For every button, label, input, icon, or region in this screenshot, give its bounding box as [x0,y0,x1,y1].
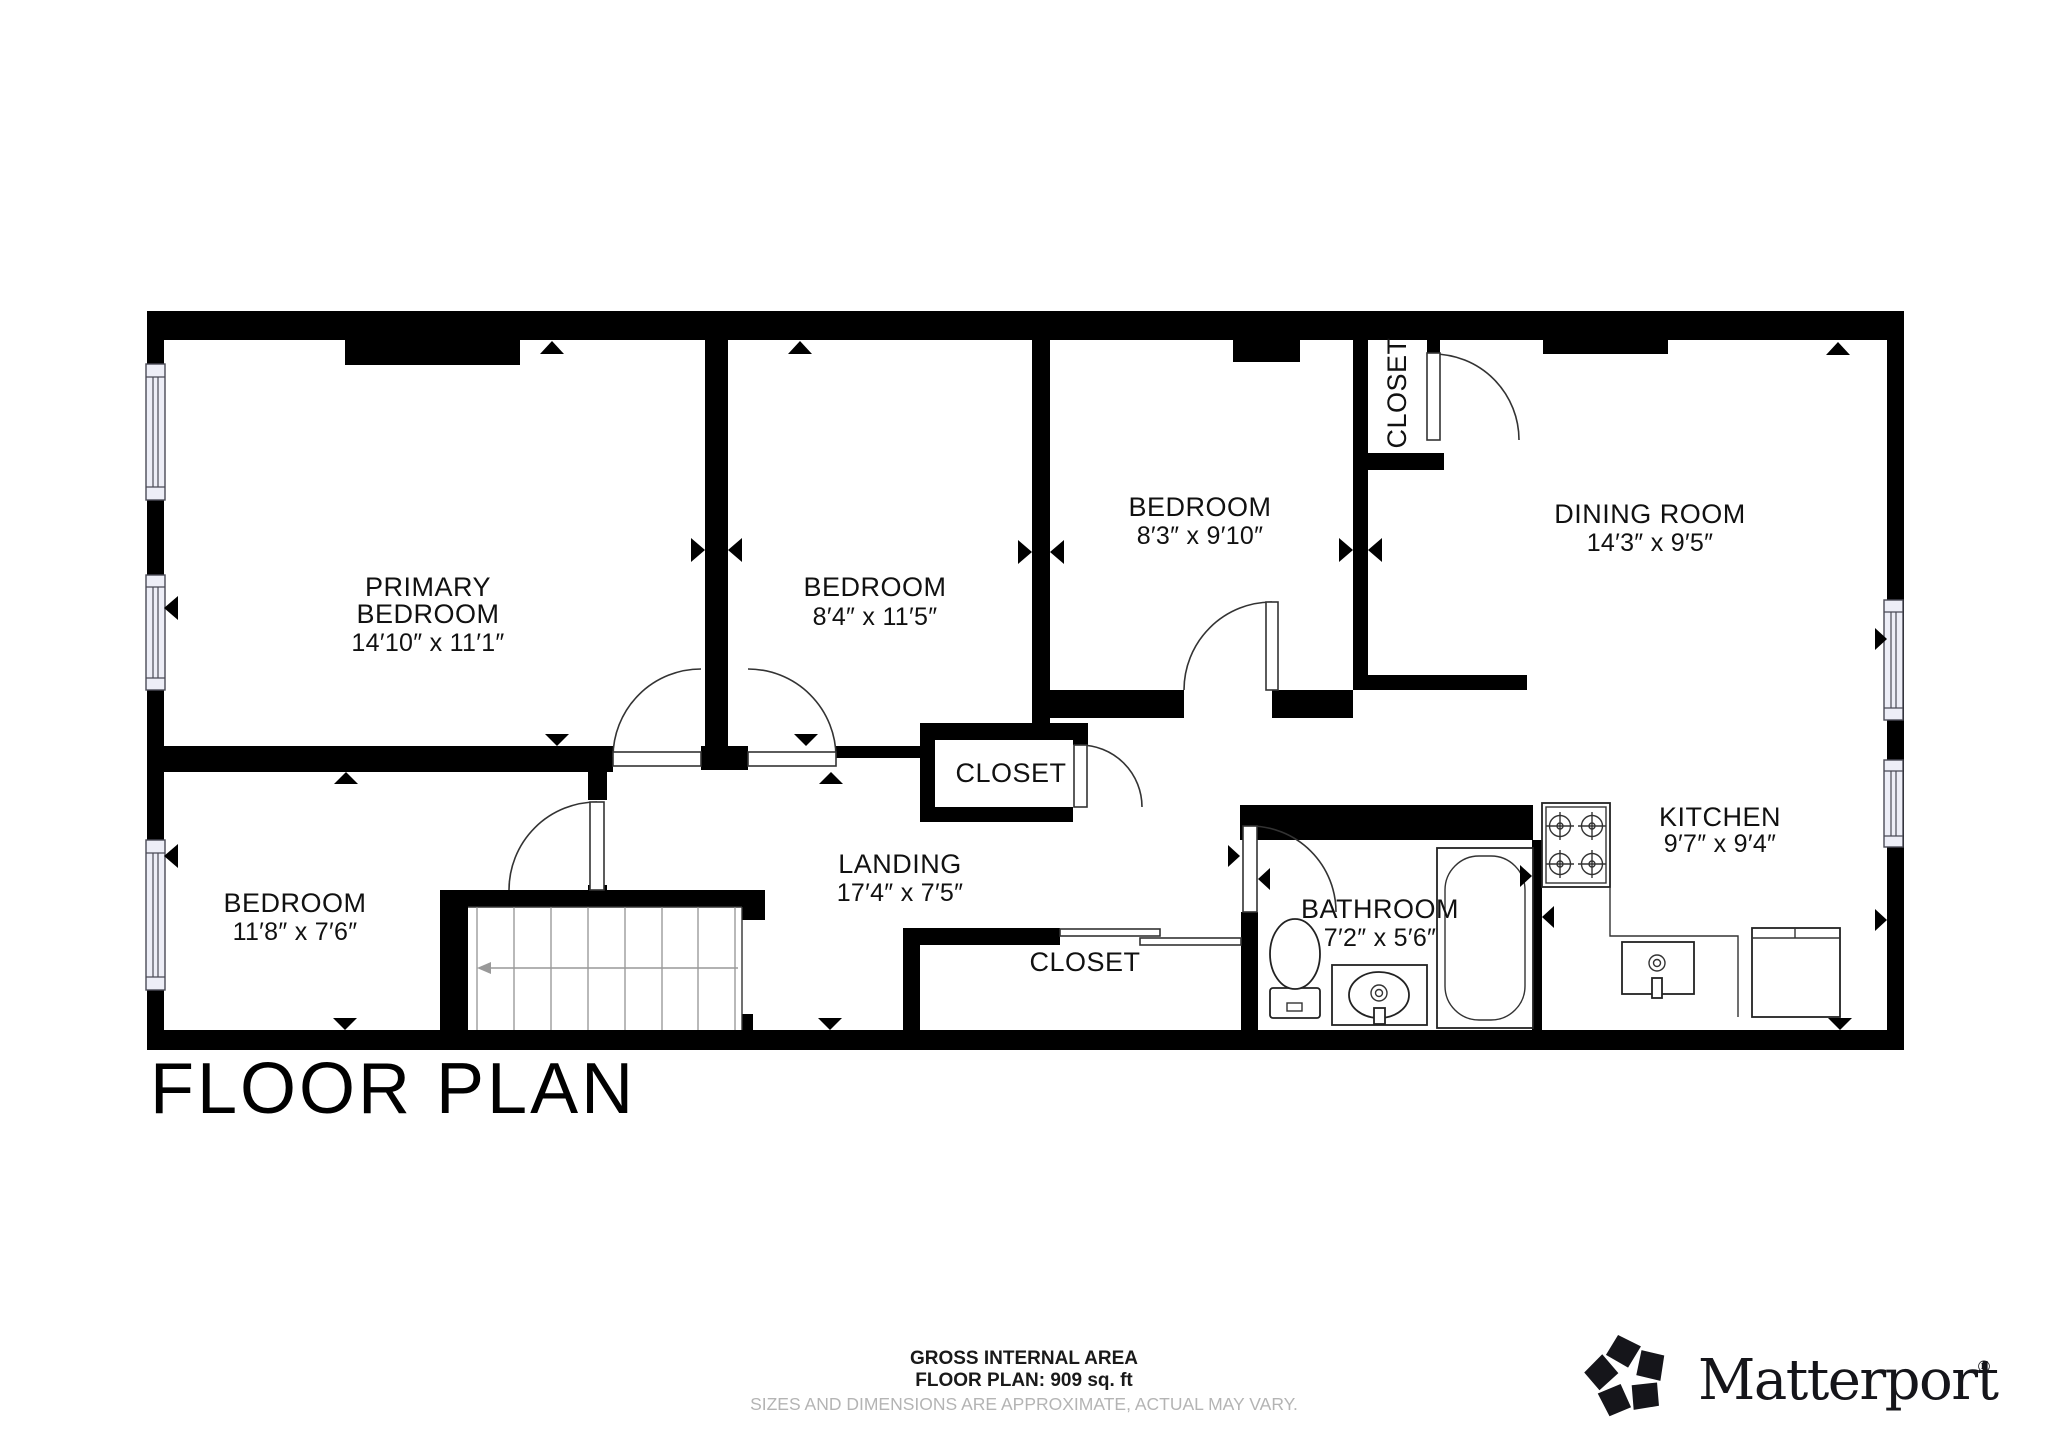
kitchen-sink [1622,942,1694,998]
marker-bed2-top [788,341,812,354]
marker-kitchen-bottom [1828,1018,1852,1030]
wall-stairs-left [440,890,468,1030]
window-primary-2 [146,575,165,690]
walls [147,311,1904,1050]
wall-bed3-dining [1353,340,1368,690]
window-dining [1884,600,1903,720]
matterport-logo: Matterport ® [1573,1325,1999,1432]
wall-primary-bed2 [705,340,728,770]
wall-primary-south [164,746,613,772]
marker-bathdoor-right [1258,868,1270,890]
wall-bump-bedroom3 [1233,340,1300,362]
room-dims-bedroom2: 8′4″ x 11′5″ [813,603,938,631]
wall-bed3-south-right [1272,690,1353,718]
marker-wallC-left [1339,538,1353,562]
marker-rightwall-kitchen [1875,909,1887,931]
wall-bump-primary [345,340,520,365]
door-closet-bottom-sliding [1060,929,1241,945]
floor-plan-page: PRIMARY BEDROOM 14′10″ x 11′1″ BEDROOM 8… [0,0,2048,1448]
marker-tubwall-right [1542,906,1554,928]
window-primary-1 [146,364,165,500]
room-bedroom3: BEDROOM 8′3″ x 9′10″ [1128,492,1271,550]
registered-trademark-symbol: ® [1976,1357,1992,1376]
room-dims-bathroom: 7′2″ x 5′6″ [1324,924,1436,952]
marker-landing-bottom [818,1018,842,1030]
wall-closet-top-bottom [1353,453,1444,470]
room-label-dining: DINING ROOM [1554,499,1746,529]
room-label-closet-top: CLOSET [1382,337,1412,448]
marker-primary-top [540,341,564,354]
marker-bed4-topwall [334,772,358,784]
door-primary-bedroom [613,669,701,766]
toilet [1270,919,1320,1018]
stove [1542,803,1610,887]
marker-bathdoor-left [1228,845,1240,867]
marker-dining-top [1826,342,1850,355]
room-landing: LANDING 17′4″ x 7′5″ [837,849,964,907]
room-label-primary-line1: PRIMARY [365,572,491,602]
wall-dining-south [1353,675,1527,690]
footer: GROSS INTERNAL AREA FLOOR PLAN: 909 sq. … [750,1348,1298,1414]
wall-bed3-south-left [1050,690,1184,718]
room-dims-landing: 17′4″ x 7′5″ [837,879,964,907]
wall-stairs-top [440,890,765,907]
room-bedroom2: BEDROOM 8′4″ x 11′5″ [803,572,946,631]
wall-closet-mid-top [920,723,1088,740]
marker-window-bed4 [164,844,178,868]
wall-bump-dining [1543,340,1668,354]
wall-closet-mid-bottom [920,807,1073,822]
staircase [468,907,742,1030]
room-label-bedroom2: BEDROOM [803,572,946,602]
footer-disclaimer: SIZES AND DIMENSIONS ARE APPROXIMATE, AC… [750,1394,1298,1414]
wall-closet-bottom-top [920,928,1060,945]
room-label-bathroom: BATHROOM [1301,894,1459,924]
room-kitchen: KITCHEN 9′7″ x 9′4″ [1659,802,1781,858]
door-bedroom2 [748,669,836,766]
wall-outer-top [147,311,1904,340]
marker-bed4-bottom [333,1018,357,1030]
room-label-kitchen: KITCHEN [1659,802,1781,832]
marker-landing-up [819,772,843,784]
stair-direction-arrow [477,962,738,974]
wall-bed2-bed3 [1032,340,1050,723]
room-dims-bedroom3: 8′3″ x 9′10″ [1137,522,1264,550]
room-label-primary-line2: BEDROOM [356,599,499,629]
footer-floor-plan-area: FLOOR PLAN: 909 sq. ft [915,1370,1133,1391]
room-bedroom4: BEDROOM 11′8″ x 7′6″ [223,888,366,946]
room-label-closet-bottom: CLOSET [1029,947,1140,977]
page-title: FLOOR PLAN [150,1049,636,1129]
room-dims-kitchen: 9′7″ x 9′4″ [1664,830,1776,858]
room-primary-bedroom: PRIMARY BEDROOM 14′10″ x 11′1″ [351,572,504,657]
wall-bed2-south-thin [836,746,920,758]
floor-plan-canvas: PRIMARY BEDROOM 14′10″ x 11′1″ BEDROOM 8… [0,0,2048,1448]
room-bathroom: BATHROOM 7′2″ x 5′6″ [1301,894,1459,952]
bathroom-sink [1332,965,1427,1025]
window-bedroom4 [146,840,165,990]
wall-outer-bottom [147,1030,1904,1050]
door-closet-middle [1074,745,1142,807]
room-dims-primary: 14′10″ x 11′1″ [351,629,504,657]
matterport-logo-icon [1573,1325,1683,1432]
opening-markers [164,341,1887,1030]
wall-closet-mid-post [1073,723,1088,745]
room-closet-middle: CLOSET [955,758,1066,788]
marker-wallB-right [1050,540,1064,564]
footer-gross-internal-area: GROSS INTERNAL AREA [910,1348,1138,1369]
wall-closet-top-post [1427,340,1440,353]
matterport-wordmark: Matterport [1698,1348,1999,1413]
wall-bathroom-left-lower [1241,912,1258,1030]
room-dining: DINING ROOM 14′3″ x 9′5″ [1554,499,1746,557]
bathtub [1437,848,1533,1028]
room-dims-bedroom4: 11′8″ x 7′6″ [233,918,358,946]
wall-closet-bottom-left [903,928,920,1030]
marker-wallA-left [691,538,705,562]
wall-bed4-east-upper [588,746,607,800]
window-kitchen [1884,760,1903,847]
marker-wallA-right [728,538,742,562]
refrigerator [1752,928,1840,1017]
marker-primary-bottom [545,734,569,746]
marker-wallC-right [1368,538,1382,562]
door-closet-top [1427,353,1519,440]
wall-stairs-stub-upper [742,890,765,920]
room-closet-top: CLOSET [1382,337,1412,448]
marker-window-primary2 [164,596,178,620]
room-closet-bottom: CLOSET [1029,947,1140,977]
room-label-landing: LANDING [838,849,962,879]
door-bedroom3 [1184,602,1278,690]
marker-wallB-left [1018,540,1032,564]
windows [146,364,1903,990]
room-label-bedroom4: BEDROOM [223,888,366,918]
wall-stairs-stub-lower [742,1014,753,1030]
room-dims-dining: 14′3″ x 9′5″ [1587,529,1714,557]
marker-doorway-down [794,734,818,746]
wall-door-post-center [701,746,748,770]
door-bedroom4 [509,802,604,890]
room-label-bedroom3: BEDROOM [1128,492,1271,522]
room-label-closet-middle: CLOSET [955,758,1066,788]
